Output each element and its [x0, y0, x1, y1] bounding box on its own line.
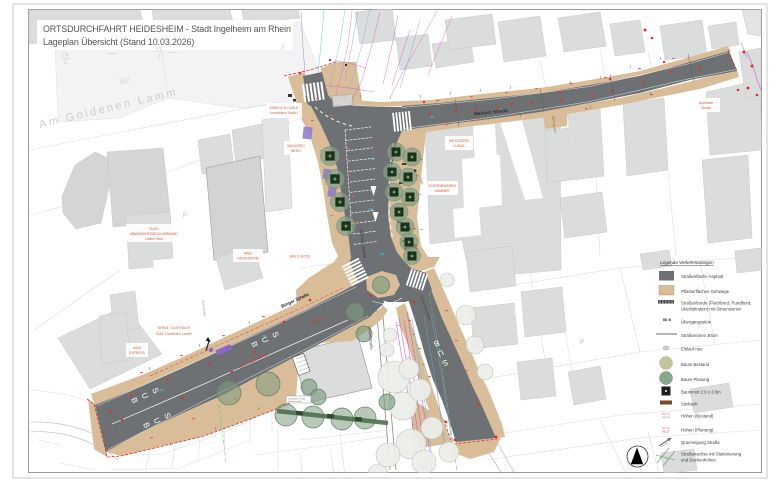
svg-text:Lageplan Übersicht (Stand 10.0: Lageplan Übersicht (Stand 10.03.2026) — [43, 37, 194, 47]
svg-text:ABWASSERZWECKVERBAND: ABWASSERZWECKVERBAND — [130, 232, 178, 236]
svg-text:99.99: 99.99 — [662, 416, 670, 420]
svg-text:Höhen (Planung): Höhen (Planung) — [681, 428, 714, 433]
svg-text:Baum Bestand: Baum Bestand — [681, 362, 710, 367]
svg-text:36.27: 36.27 — [662, 430, 670, 434]
svg-text:Höhen (Bestand): Höhen (Bestand) — [681, 414, 714, 419]
svg-text:P: P — [580, 340, 584, 346]
svg-text:Straßenrinne 30cm: Straßenrinne 30cm — [681, 333, 718, 338]
svg-text:Baum Planung: Baum Planung — [681, 377, 710, 382]
svg-text:EXPRESS: EXPRESS — [129, 351, 146, 355]
svg-text:AWO: AWO — [244, 252, 252, 256]
svg-text:werden verlegt: werden verlegt — [288, 400, 302, 403]
svg-text:Immobilien GmbH: Immobilien GmbH — [270, 111, 298, 115]
svg-text:23: 23 — [155, 48, 162, 54]
svg-text:BÄCKEREI: BÄCKEREI — [287, 144, 304, 148]
svg-text:Apotheke: Apotheke — [699, 101, 713, 105]
svg-text:Querneigung Straße: Querneigung Straße — [681, 440, 721, 445]
svg-text:74: 74 — [62, 53, 69, 59]
svg-text:ZUM 'Goldenen Lamm': ZUM 'Goldenen Lamm' — [156, 332, 193, 336]
svg-text:Legende Verkehrsanlagen: Legende Verkehrsanlagen — [660, 260, 714, 265]
svg-text:Sindle: Sindle — [701, 106, 711, 110]
svg-text:Einlauf neu: Einlauf neu — [681, 347, 703, 352]
svg-text:HAMMER: HAMMER — [434, 189, 450, 193]
svg-text:Übergangsstein: Übergangsstein — [681, 320, 712, 325]
svg-text:Überfahrstein) mit Dimensionen: Überfahrstein) mit Dimensionen — [681, 307, 742, 312]
svg-text:HEIDESHEIM: HEIDESHEIM — [237, 257, 258, 261]
svg-text:Straßenfläche Asphalt: Straßenfläche Asphalt — [681, 274, 724, 279]
svg-text:EMRICH & CARLE: EMRICH & CARLE — [270, 106, 300, 110]
svg-text:LUKAS: LUKAS — [453, 144, 465, 148]
svg-text:und Deckenhöhen: und Deckenhöhen — [681, 458, 716, 463]
svg-text:SCHREIBWAREN: SCHREIBWAREN — [428, 184, 456, 188]
svg-text:Untere Selz: Untere Selz — [145, 237, 163, 241]
svg-text:Pflasterflächen Gehwege: Pflasterflächen Gehwege — [681, 289, 730, 294]
svg-text:AVUS: AVUS — [150, 227, 160, 231]
svg-text:ORTSDURCHFAHRT HEIDESHEIM - St: ORTSDURCHFAHRT HEIDESHEIM - Stadt Ingelh… — [43, 24, 291, 34]
svg-text:EHEM. GASTHAUS: EHEM. GASTHAUS — [158, 326, 191, 330]
svg-text:Sitzbank: Sitzbank — [681, 402, 698, 407]
svg-text:METZGEREI: METZGEREI — [449, 139, 469, 143]
svg-text:WALD SPICE: WALD SPICE — [290, 255, 312, 259]
svg-text:P: P — [183, 213, 187, 219]
svg-text:ASIA: ASIA — [133, 346, 141, 350]
svg-text:Straßenborde (Flachbord, Rundb: Straßenborde (Flachbord, Rundbord, — [681, 301, 751, 306]
svg-text:Baumrost 2.0 x 2.0m: Baumrost 2.0 x 2.0m — [681, 390, 721, 395]
svg-text:Straßenachse mit Stationierung: Straßenachse mit Stationierung — [681, 452, 742, 457]
svg-text:Schulstraße: Schulstraße — [201, 300, 207, 318]
svg-text:BERG: BERG — [291, 149, 301, 153]
